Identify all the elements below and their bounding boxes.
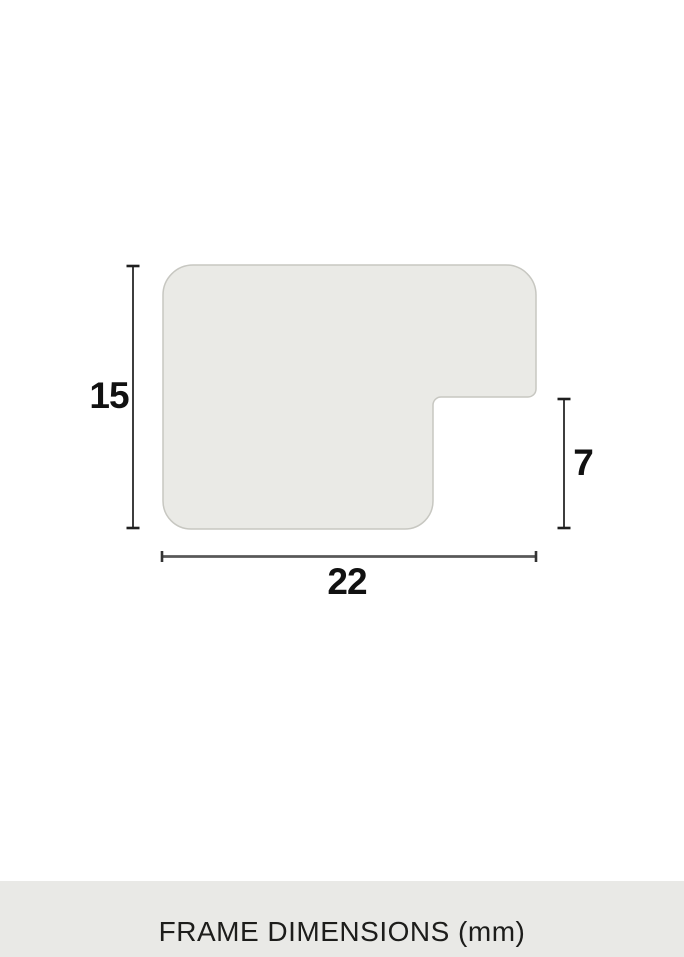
rabbet-dimension-label: 7 — [558, 443, 608, 483]
caption-text: FRAME DIMENSIONS (mm) — [0, 912, 684, 952]
frame-dimensions-view: 15 7 22 FRAME DIMENSIONS (mm) — [0, 0, 684, 957]
width-dimension-label: 22 — [322, 562, 372, 602]
frame-profile-shape — [163, 265, 536, 529]
height-dimension-label: 15 — [84, 376, 134, 416]
profile-diagram-canvas — [0, 0, 684, 880]
frame-profile-diagram: 15 7 22 — [0, 0, 684, 957]
caption-bar: FRAME DIMENSIONS (mm) — [0, 881, 684, 957]
